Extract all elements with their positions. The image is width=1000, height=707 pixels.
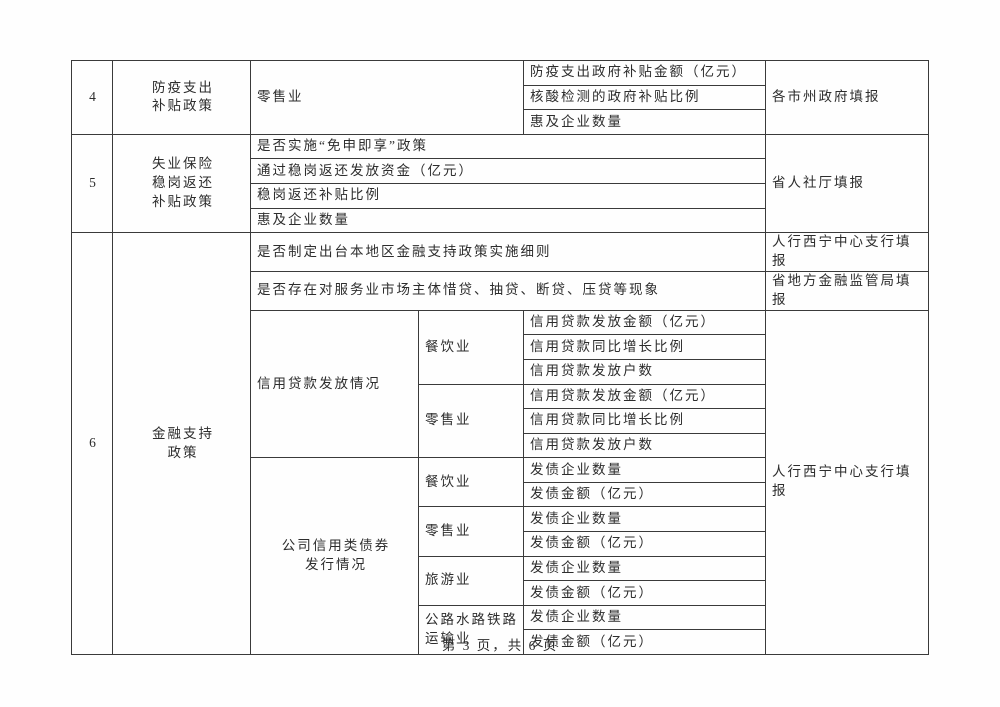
indicator-item: 信用贷款发放户数 xyxy=(524,359,766,384)
indicator-item: 信用贷款发放金额（亿元） xyxy=(524,384,766,409)
indicator-item: 稳岗返还补贴比例 xyxy=(251,183,766,208)
indicator-item: 核酸检测的政府补贴比例 xyxy=(524,85,766,110)
indicator-item: 发债金额（亿元） xyxy=(524,581,766,606)
policy-name: 失业保险 稳岗返还 补贴政策 xyxy=(113,134,251,232)
report-table: 4 防疫支出 补贴政策 零售业 防疫支出政府补贴金额（亿元） 各市州政府填报 核… xyxy=(71,60,929,655)
policy-name: 防疫支出 补贴政策 xyxy=(113,61,251,135)
category-cell: 信用贷款发放情况 xyxy=(251,310,419,458)
category-cell: 公司信用类债券 发行情况 xyxy=(251,458,419,655)
policy-name-line: 补贴政策 xyxy=(119,97,247,116)
table-row: 5 失业保险 稳岗返还 补贴政策 是否实施“免申即享”政策 省人社厅填报 xyxy=(72,134,929,159)
row-number: 6 xyxy=(72,233,113,655)
reporting-agency: 人行西宁中心支行填报 xyxy=(766,233,929,272)
policy-name-line: 稳岗返还 xyxy=(119,174,247,193)
policy-name-line: 防疫支出 xyxy=(119,79,247,98)
indicator-item: 发债企业数量 xyxy=(524,556,766,581)
industry-cell: 零售业 xyxy=(419,384,524,458)
category-line: 公司信用类债券 xyxy=(257,537,415,556)
indicator-item: 发债企业数量 xyxy=(524,605,766,630)
indicator-item: 是否制定出台本地区金融支持政策实施细则 xyxy=(251,233,766,272)
document-page: 4 防疫支出 补贴政策 零售业 防疫支出政府补贴金额（亿元） 各市州政府填报 核… xyxy=(0,0,1000,707)
indicator-item: 发债企业数量 xyxy=(524,458,766,483)
row-number: 4 xyxy=(72,61,113,135)
policy-name-line: 失业保险 xyxy=(119,155,247,174)
industry-cell: 餐饮业 xyxy=(419,458,524,507)
indicator-item: 发债金额（亿元） xyxy=(524,482,766,507)
policy-name-line: 补贴政策 xyxy=(119,193,247,212)
reporting-agency: 省地方金融监管局填报 xyxy=(766,271,929,310)
reporting-agency: 各市州政府填报 xyxy=(766,61,929,135)
industry-cell: 餐饮业 xyxy=(419,310,524,384)
reporting-agency: 人行西宁中心支行填报 xyxy=(766,310,929,654)
indicator-item: 信用贷款同比增长比例 xyxy=(524,335,766,360)
indicator-item: 惠及企业数量 xyxy=(251,208,766,233)
policy-name: 金融支持 政策 xyxy=(113,233,251,655)
page-indicator: 第 3 页，共 6 页 xyxy=(0,634,1000,654)
indicator-item: 惠及企业数量 xyxy=(524,110,766,135)
policy-name-line: 政策 xyxy=(119,444,247,463)
indicator-item: 信用贷款发放金额（亿元） xyxy=(524,310,766,335)
indicator-item: 发债企业数量 xyxy=(524,507,766,532)
indicator-item: 信用贷款发放户数 xyxy=(524,433,766,458)
row-number: 5 xyxy=(72,134,113,232)
industry-cell: 零售业 xyxy=(419,507,524,556)
indicator-item: 是否实施“免申即享”政策 xyxy=(251,134,766,159)
table-row: 6 金融支持 政策 是否制定出台本地区金融支持政策实施细则 人行西宁中心支行填报 xyxy=(72,233,929,272)
reporting-agency: 省人社厅填报 xyxy=(766,134,929,232)
category-line: 发行情况 xyxy=(257,556,415,575)
policy-name-line: 金融支持 xyxy=(119,425,247,444)
indicator-item: 信用贷款同比增长比例 xyxy=(524,409,766,434)
indicator-item: 是否存在对服务业市场主体惜贷、抽贷、断贷、压贷等现象 xyxy=(251,271,766,310)
indicator-item: 通过稳岗返还发放资金（亿元） xyxy=(251,159,766,184)
industry-cell: 零售业 xyxy=(251,61,524,135)
indicator-item: 发债金额（亿元） xyxy=(524,532,766,557)
table-row: 4 防疫支出 补贴政策 零售业 防疫支出政府补贴金额（亿元） 各市州政府填报 xyxy=(72,61,929,86)
industry-cell: 旅游业 xyxy=(419,556,524,605)
indicator-item: 防疫支出政府补贴金额（亿元） xyxy=(524,61,766,86)
